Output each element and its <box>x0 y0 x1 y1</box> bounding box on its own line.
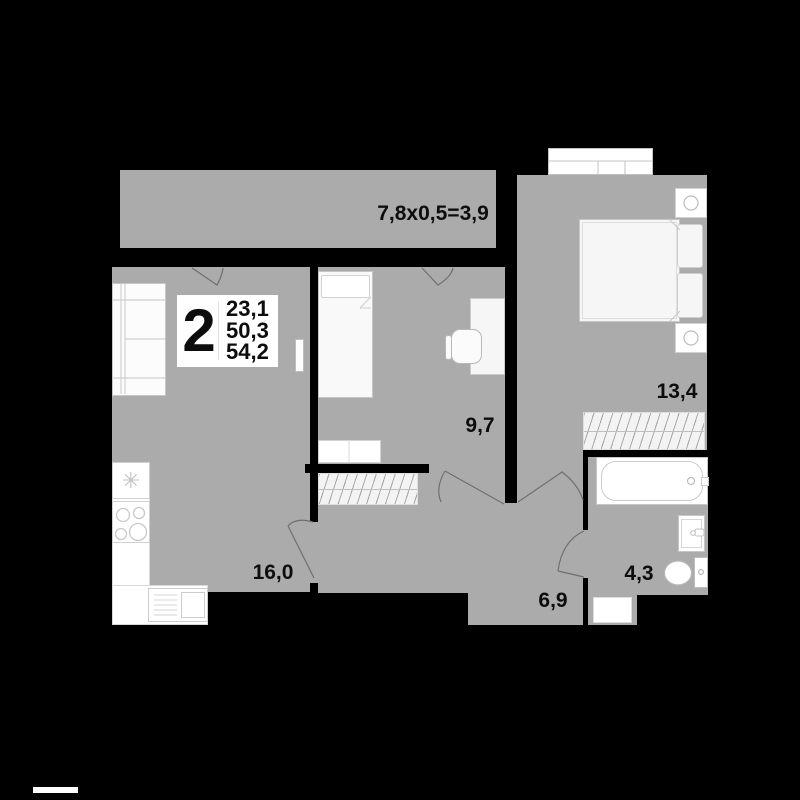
fridge: ✳ <box>112 462 150 499</box>
balcony-dimension-label: 7,8x0,5=3,9 <box>377 202 489 226</box>
area-value: 50,3 <box>226 320 269 342</box>
hallway-wardrobe <box>318 473 418 505</box>
bathroom-door-opening <box>583 530 588 578</box>
area-label-bedroom: 13,4 <box>657 380 698 404</box>
area-figures: 23,1 50,3 54,2 <box>226 298 269 363</box>
living-area-value: 23,1 <box>226 298 269 320</box>
toilet-tank <box>694 557 708 588</box>
washing-machine <box>593 597 632 623</box>
washbasin-inner <box>681 519 702 548</box>
bathtub-spout <box>701 477 709 486</box>
area-label-hallway: 6,9 <box>538 589 567 613</box>
nightstand-bottom <box>675 323 707 353</box>
stove <box>112 501 150 543</box>
tv <box>295 339 304 372</box>
bedroom-window <box>548 148 653 175</box>
bedroom-wardrobe <box>583 412 705 450</box>
wall-between-rooms <box>505 267 517 503</box>
double-bed-inner <box>582 222 677 319</box>
bed-pillow-left <box>677 224 703 268</box>
kitchen-door-opening <box>310 522 318 583</box>
fridge-star-icon: ✳ <box>113 463 149 498</box>
sofa <box>112 283 166 396</box>
total-area-value: 54,2 <box>226 341 269 363</box>
area-label-kitchen-living: 16,0 <box>253 561 294 585</box>
double-bed <box>579 219 680 322</box>
area-label-second-room: 9,7 <box>465 414 494 438</box>
wall-second-room-bottom <box>305 464 429 473</box>
nightstand-top <box>675 188 707 218</box>
sink-bowl <box>181 592 205 618</box>
info-divider <box>218 302 219 360</box>
area-label-bathroom: 4,3 <box>624 562 653 586</box>
info-box: 2 23,1 50,3 54,2 <box>177 295 278 367</box>
bed-pillow-right <box>677 273 703 318</box>
desk-chair-back <box>445 335 452 360</box>
single-bed-pillow <box>321 275 370 298</box>
room-count: 2 <box>177 295 221 367</box>
floor-plan: 2 23,1 50,3 54,2 ✳ <box>0 0 800 800</box>
wardrobe-second-room <box>318 440 381 463</box>
scale-bar <box>33 787 78 793</box>
bathtub-inner <box>601 461 703 501</box>
desk-chair <box>451 329 482 364</box>
